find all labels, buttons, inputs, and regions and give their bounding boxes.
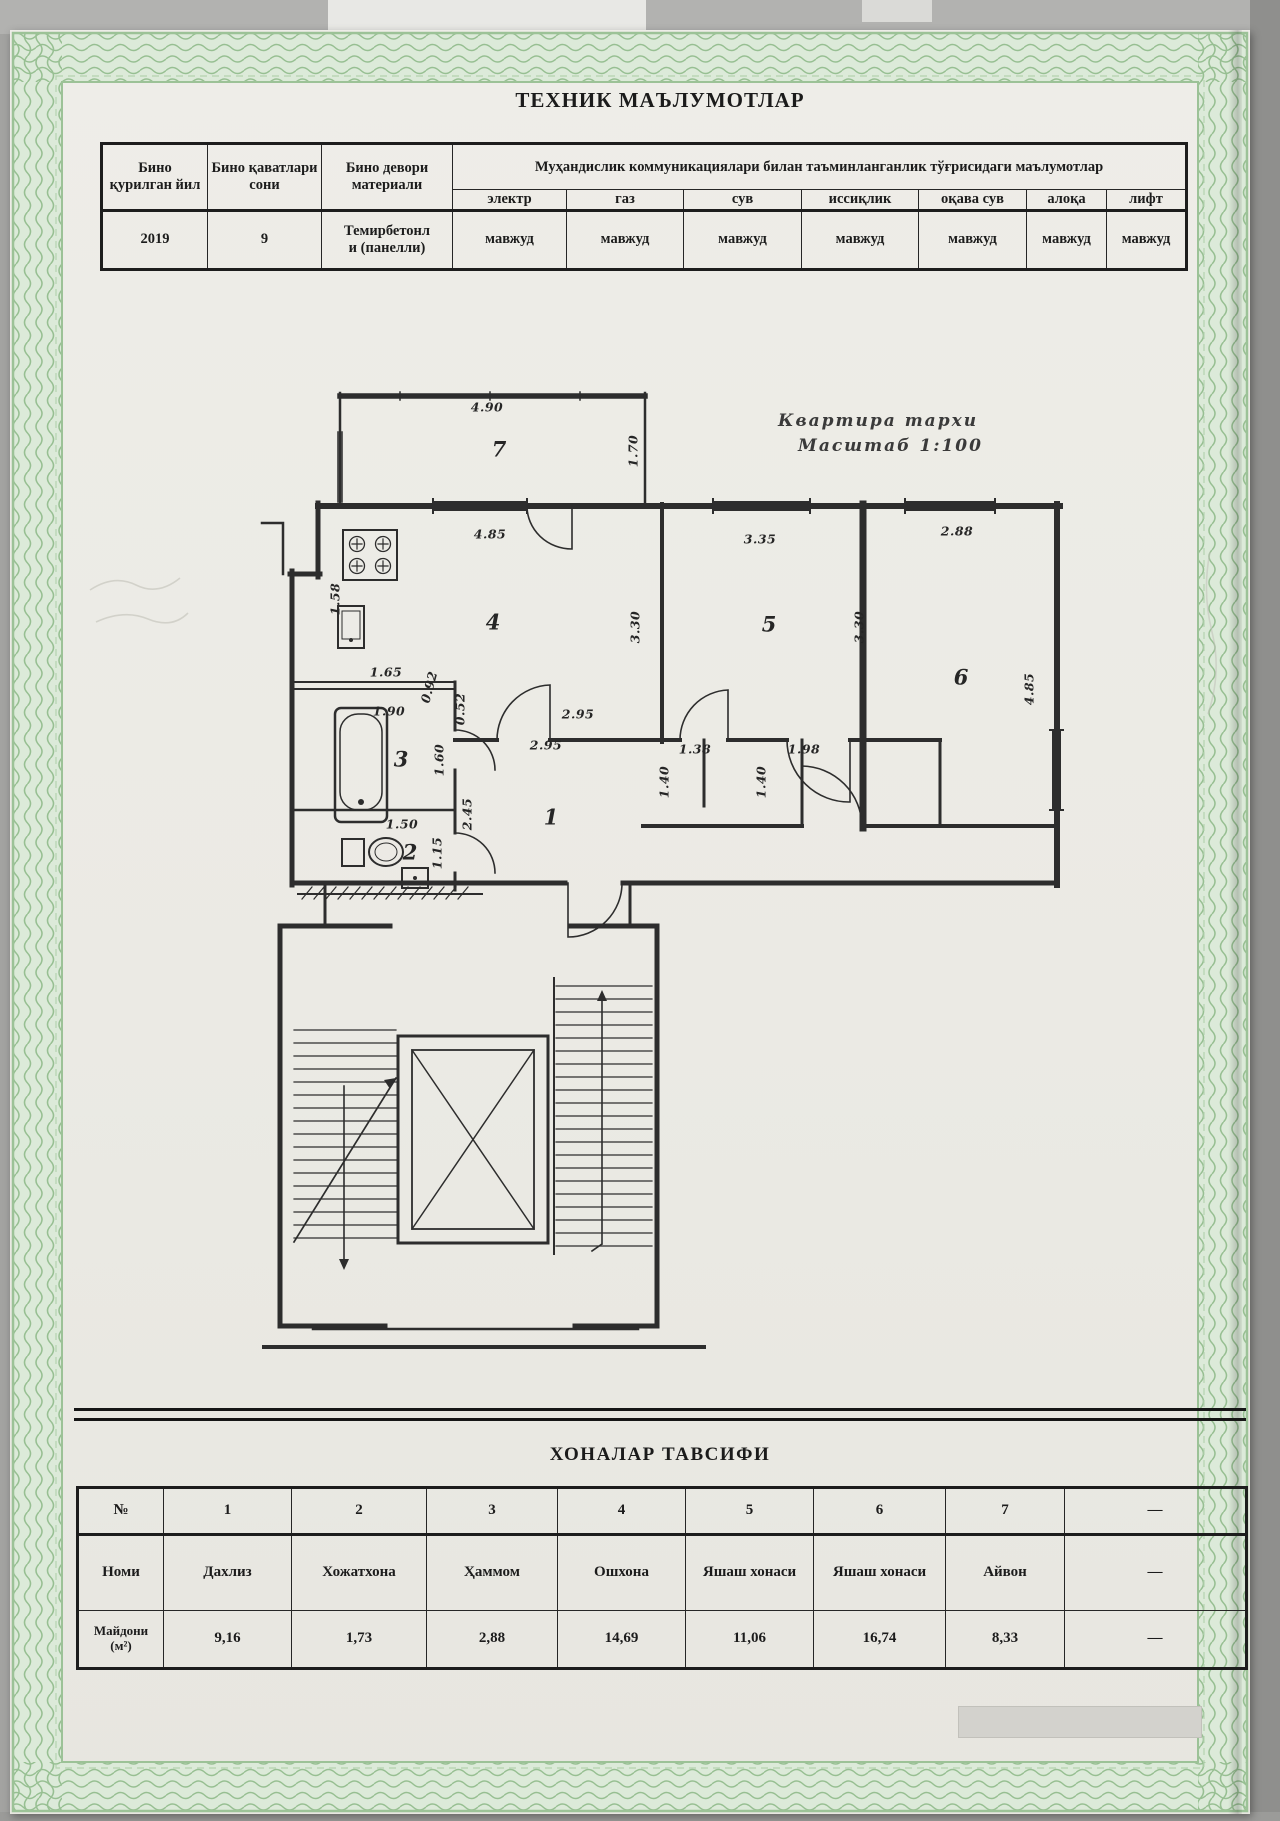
floor-plan: 4.9071.704.851.5843.3553.303.302.8864.85… xyxy=(250,378,1080,1378)
pencil-scribble xyxy=(84,548,234,658)
area-label-unit: (м²) xyxy=(110,1638,131,1653)
value-material: Темирбетонл и (панелли) xyxy=(322,210,453,269)
scan-light-patch xyxy=(328,0,646,30)
subcol-electric: электр xyxy=(453,190,567,211)
room-name-7: Айвон xyxy=(946,1535,1065,1611)
scanner-background-top xyxy=(0,0,1280,34)
room-name-4: Ошхона xyxy=(558,1535,686,1611)
room-area-3: 2,88 xyxy=(427,1611,558,1669)
scanned-technical-passport-page: { "page": { "doc_title": "ТЕХНИК МАЪЛУМО… xyxy=(0,0,1280,1821)
value-year: 2019 xyxy=(102,210,208,269)
room-area-5: 11,06 xyxy=(686,1611,814,1669)
col-header-floors: Бино қаватлари сони xyxy=(208,144,322,211)
rooms-header-5: 5 xyxy=(686,1488,814,1535)
value-electric: мавжуд xyxy=(453,210,567,269)
value-heating: мавжуд xyxy=(802,210,919,269)
material-line2: и (панелли) xyxy=(349,240,426,256)
technical-data-table: Бино қурилган йил Бино қаватлари сони Би… xyxy=(100,142,1188,271)
rooms-header-4: 4 xyxy=(558,1488,686,1535)
rooms-section-title: ХОНАЛАР ТАВСИФИ xyxy=(330,1444,990,1466)
area-label-word: Майдони xyxy=(94,1623,148,1638)
subcol-sewage: оқава сув xyxy=(919,190,1027,211)
section-divider xyxy=(74,1408,1246,1421)
scan-sticker-artifact xyxy=(958,1706,1202,1738)
room-area-7: 8,33 xyxy=(946,1611,1065,1669)
subcol-telecom: алоқа xyxy=(1027,190,1107,211)
rooms-description-table: № 1 2 3 4 5 6 7 — Номи Дахлиз Хожатхона … xyxy=(76,1486,1248,1670)
rooms-header-7: 7 xyxy=(946,1488,1065,1535)
room-name-5: Яшаш хонаси xyxy=(686,1535,814,1611)
row-label-area: Майдони (м²) xyxy=(78,1611,164,1669)
room-area-4: 14,69 xyxy=(558,1611,686,1669)
room-area-6: 16,74 xyxy=(814,1611,946,1669)
pencil-scribble xyxy=(1196,548,1222,718)
value-telecom: мавжуд xyxy=(1027,210,1107,269)
plan-title: Квартира тархи xyxy=(778,411,978,431)
plan-scale: Масштаб 1:100 xyxy=(798,436,983,456)
value-elevator: мавжуд xyxy=(1107,210,1187,269)
value-water: мавжуд xyxy=(684,210,802,269)
row-label-name: Номи xyxy=(78,1535,164,1611)
value-floors: 9 xyxy=(208,210,322,269)
col-header-communications: Муҳандислик коммуникациялари билан таъми… xyxy=(453,144,1187,190)
subcol-heating: иссиқлик xyxy=(802,190,919,211)
floor-plan-drawing xyxy=(250,378,1080,1378)
col-header-material: Бино девори материали xyxy=(322,144,453,211)
value-gas: мавжуд xyxy=(567,210,684,269)
subcol-gas: газ xyxy=(567,190,684,211)
document-title: ТЕХНИК МАЪЛУМОТЛАР xyxy=(330,88,990,113)
value-sewage: мавжуд xyxy=(919,210,1027,269)
rooms-header-2: 2 xyxy=(292,1488,427,1535)
rooms-header-3: 3 xyxy=(427,1488,558,1535)
room-area-dash: — xyxy=(1065,1611,1247,1669)
col-header-year: Бино қурилган йил xyxy=(102,144,208,211)
rooms-header-6: 6 xyxy=(814,1488,946,1535)
subcol-water: сув xyxy=(684,190,802,211)
room-area-2: 1,73 xyxy=(292,1611,427,1669)
scan-light-patch xyxy=(862,0,932,22)
room-name-3: Ҳаммом xyxy=(427,1535,558,1611)
material-line1: Темирбетонл xyxy=(344,223,430,239)
room-name-2: Хожатхона xyxy=(292,1535,427,1611)
subcol-elevator: лифт xyxy=(1107,190,1187,211)
room-name-dash: — xyxy=(1065,1535,1247,1611)
rooms-header-no: № xyxy=(78,1488,164,1535)
room-name-6: Яшаш хонаси xyxy=(814,1535,946,1611)
rooms-header-1: 1 xyxy=(164,1488,292,1535)
scanner-background-right xyxy=(1250,0,1280,1821)
room-area-1: 9,16 xyxy=(164,1611,292,1669)
rooms-header-dash: — xyxy=(1065,1488,1247,1535)
room-name-1: Дахлиз xyxy=(164,1535,292,1611)
